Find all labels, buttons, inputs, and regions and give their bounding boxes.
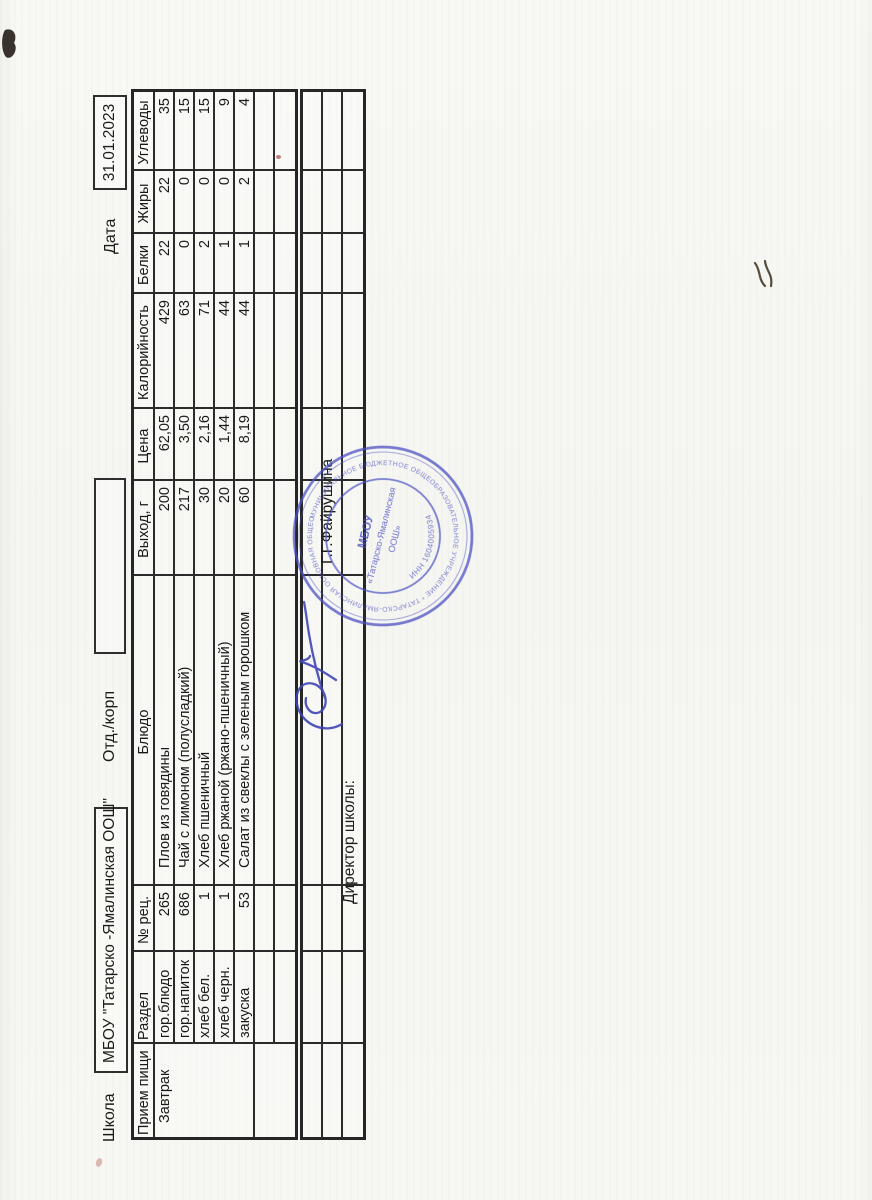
menu-cell xyxy=(215,1042,235,1137)
menu-cell: Чай с лимоном (полусладкий) xyxy=(175,574,195,884)
footer-cell xyxy=(343,169,363,232)
menu-cell: 62,05 xyxy=(155,407,175,479)
menu-cell: 44 xyxy=(235,292,255,407)
dept-value-box xyxy=(94,478,126,654)
menu-cell xyxy=(255,92,275,169)
menu-cell xyxy=(255,232,275,292)
menu-cell: 0 xyxy=(215,169,235,232)
scan-speck-red xyxy=(276,155,281,159)
menu-cell xyxy=(175,1042,195,1137)
menu-cell: 15 xyxy=(175,92,195,169)
document-rotated-landscape: Школа МБОУ "Татарско -Ямалинская ООШ" От… xyxy=(0,0,872,1200)
table-row: хлеб черн.1Хлеб ржаной (ржано-пшеничный)… xyxy=(215,92,235,1137)
footer-cell xyxy=(323,884,343,950)
menu-cell: 0 xyxy=(195,169,215,232)
footer-cell xyxy=(303,884,323,950)
menu-cell xyxy=(275,884,295,950)
menu-cell: 22 xyxy=(155,169,175,232)
menu-cell: 2 xyxy=(195,232,215,292)
menu-cell xyxy=(255,574,275,884)
menu-column-header: Выход, г xyxy=(134,479,155,574)
menu-column-header: Жиры xyxy=(134,169,155,232)
menu-cell: 217 xyxy=(175,479,195,574)
menu-cell xyxy=(255,292,275,407)
date-label: Дата xyxy=(102,219,120,254)
menu-column-header: Калорийность xyxy=(134,292,155,407)
menu-cell: 2,16 xyxy=(195,407,215,479)
dept-label: Отд./корп xyxy=(101,691,119,762)
menu-cell: 0 xyxy=(175,232,195,292)
menu-cell: 200 xyxy=(155,479,175,574)
stamp-inn: ИНН 1604005934 xyxy=(406,511,442,584)
footer-cell xyxy=(343,232,363,292)
menu-cell xyxy=(255,1042,275,1137)
menu-cell xyxy=(235,1042,255,1137)
menu-cell: 686 xyxy=(175,884,195,950)
footer-cell xyxy=(323,169,343,232)
menu-cell xyxy=(275,232,295,292)
date-value: 31.01.2023 xyxy=(101,104,118,182)
table-row: гор.напиток686Чай с лимоном (полусладкий… xyxy=(175,92,195,1137)
footer-cell xyxy=(343,1042,363,1137)
menu-cell: 71 xyxy=(195,292,215,407)
menu-cell xyxy=(255,950,275,1042)
menu-cell xyxy=(195,1042,215,1137)
menu-column-header: Цена xyxy=(134,407,155,479)
menu-cell: 1 xyxy=(195,884,215,950)
footer-cell xyxy=(323,232,343,292)
menu-cell: 22 xyxy=(155,232,175,292)
menu-cell: 35 xyxy=(155,92,175,169)
menu-cell: 53 xyxy=(235,884,255,950)
menu-column-header: Блюдо xyxy=(134,574,155,884)
footer-cell xyxy=(303,1042,323,1137)
menu-cell: 1 xyxy=(215,884,235,950)
menu-cell: 1,44 xyxy=(215,407,235,479)
footer-cell xyxy=(323,92,343,169)
menu-cell: 4 xyxy=(235,92,255,169)
menu-cell: 2 xyxy=(235,169,255,232)
menu-cell: 1 xyxy=(235,232,255,292)
school-name-box: МБОУ "Татарско -Ямалинская ООШ" xyxy=(94,807,128,1073)
menu-cell: закуска xyxy=(235,950,255,1042)
menu-cell: Плов из говядины xyxy=(155,574,175,884)
menu-column-header: Раздел xyxy=(134,950,155,1042)
menu-cell: 429 xyxy=(155,292,175,407)
menu-cell: хлеб бел. xyxy=(195,950,215,1042)
menu-cell: Завтрак xyxy=(155,1042,175,1137)
school-label: Школа xyxy=(101,1093,119,1142)
menu-cell xyxy=(275,950,295,1042)
menu-cell: 0 xyxy=(175,169,195,232)
footer-cell xyxy=(303,950,323,1042)
footer-cell xyxy=(303,92,323,169)
menu-cell xyxy=(275,1042,295,1137)
menu-cell xyxy=(275,407,295,479)
menu-cell xyxy=(255,169,275,232)
menu-cell xyxy=(255,479,275,574)
table-row xyxy=(255,92,275,1137)
menu-cell xyxy=(275,292,295,407)
director-label: Директор школы: xyxy=(341,780,359,904)
table-header-row: Прием пищиРаздел№ рец.БлюдоВыход, гЦенаК… xyxy=(134,92,155,1137)
menu-cell: Хлеб ржаной (ржано-пшеничный) xyxy=(215,574,235,884)
footer-cell xyxy=(323,950,343,1042)
menu-cell: 15 xyxy=(195,92,215,169)
menu-column-header: № рец. xyxy=(134,884,155,950)
menu-cell: 60 xyxy=(235,479,255,574)
scanned-page: { "header": { "school_label": "Школа", "… xyxy=(0,0,872,1200)
menu-cell: 30 xyxy=(195,479,215,574)
menu-cell: 9 xyxy=(215,92,235,169)
stamp-org-line3: ООШ» xyxy=(386,524,402,553)
menu-cell: 3,50 xyxy=(175,407,195,479)
footer-cell xyxy=(303,169,323,232)
footer-cell xyxy=(343,92,363,169)
menu-cell: 1 xyxy=(215,232,235,292)
menu-column-header: Белки xyxy=(134,232,155,292)
date-value-box: 31.01.2023 xyxy=(93,95,127,190)
menu-cell: 20 xyxy=(215,479,235,574)
footer-cell xyxy=(323,1042,343,1137)
footer-cell xyxy=(303,232,323,292)
school-name: МБОУ "Татарско -Ямалинская ООШ" xyxy=(96,809,119,1071)
menu-cell: 265 xyxy=(155,884,175,950)
menu-cell xyxy=(255,884,275,950)
menu-cell: хлеб черн. xyxy=(215,950,235,1042)
footer-cell xyxy=(343,950,363,1042)
table-row: закуска53Салат из свеклы с зеленым горош… xyxy=(235,92,255,1137)
menu-cell: 8,19 xyxy=(235,407,255,479)
menu-cell: 44 xyxy=(215,292,235,407)
scan-scribble xyxy=(750,256,778,292)
table-row: Завтракгор.блюдо265Плов из говядины20062… xyxy=(155,92,175,1137)
footer-cell xyxy=(343,292,363,407)
scan-blot-corner xyxy=(0,26,22,72)
footer-cell xyxy=(303,292,323,407)
menu-column-header: Углеводы xyxy=(134,92,155,169)
menu-cell xyxy=(255,407,275,479)
table-row: хлеб бел.1Хлеб пшеничный302,16712015 xyxy=(195,92,215,1137)
menu-table: Прием пищиРаздел№ рец.БлюдоВыход, гЦенаК… xyxy=(131,89,298,1140)
footer-cell xyxy=(323,292,343,407)
menu-cell: гор.напиток xyxy=(175,950,195,1042)
menu-column-header: Прием пищи xyxy=(134,1042,155,1137)
menu-cell: Хлеб пшеничный xyxy=(195,574,215,884)
menu-cell xyxy=(275,169,295,232)
menu-cell: гор.блюдо xyxy=(155,950,175,1042)
menu-cell: Салат из свеклы с зеленым горошком xyxy=(235,574,255,884)
menu-cell: 63 xyxy=(175,292,195,407)
